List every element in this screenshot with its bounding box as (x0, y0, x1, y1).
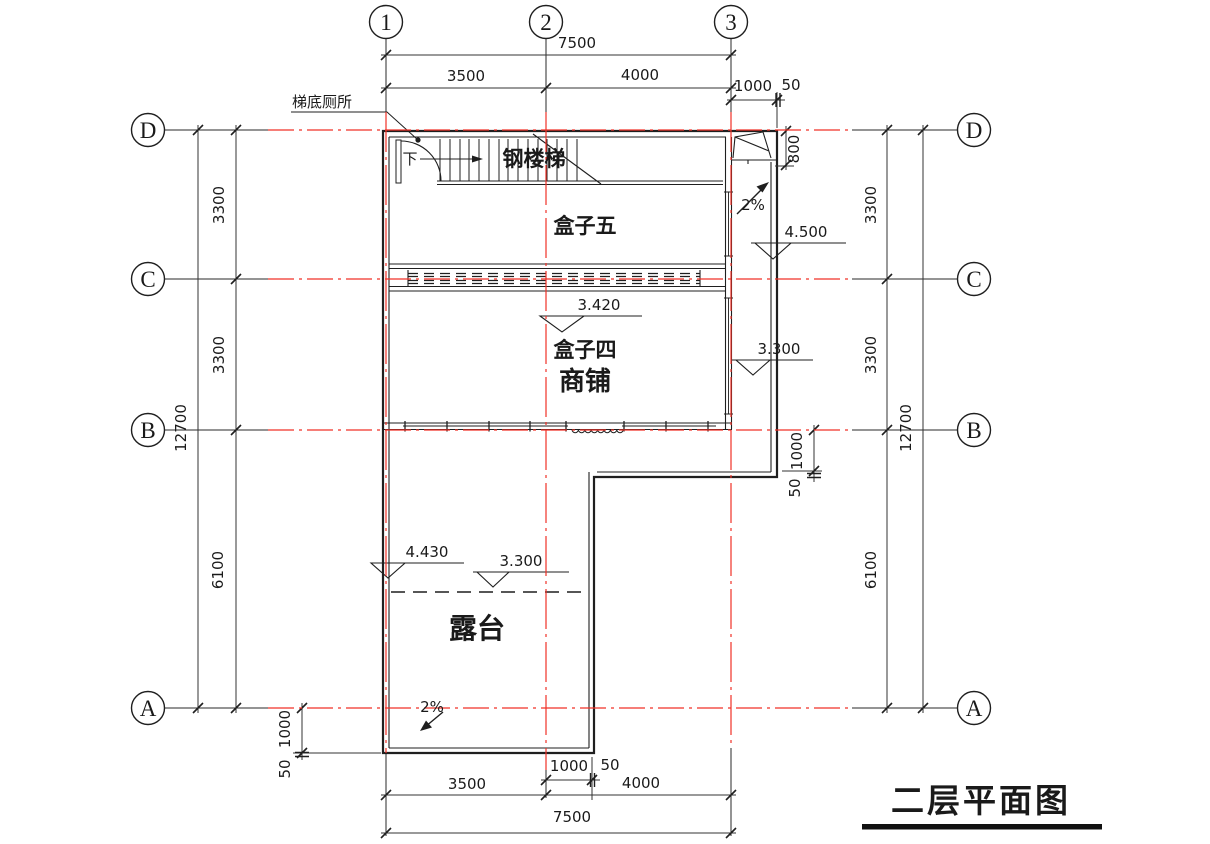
bubble-label-a-left: A (140, 696, 157, 721)
elev-3300-terrace-mark (473, 572, 569, 587)
dim-left-1000: 1000 (276, 710, 294, 748)
elev-4430-mark (371, 563, 464, 578)
bubble-label-1: 1 (380, 10, 392, 35)
dim-left-50: 50 (276, 759, 294, 778)
chute-outline (731, 132, 777, 164)
toilet-leader (291, 112, 421, 143)
elev-3300-terrace-value: 3.300 (500, 552, 543, 570)
bubble-label-d-right: D (966, 118, 983, 143)
room-box5-label: 盒子五 (554, 214, 617, 238)
elev-3300-right-value: 3.300 (758, 340, 801, 358)
slope-arrow-upper-head (757, 182, 770, 193)
floor-plan-canvas: 1 2 3 D C B A D C B A 7500 3500 4000 100… (0, 0, 1210, 844)
bubble-label-3: 3 (725, 10, 737, 35)
elevation-marks (371, 243, 846, 587)
slope-lower-value: 2% (420, 698, 444, 716)
room-box4-label: 盒子四 (554, 338, 617, 362)
room-terrace-label: 露台 (449, 612, 505, 645)
dim-right-3300-cb: 3300 (862, 336, 880, 374)
dim-top-3500: 3500 (447, 67, 485, 85)
elev-4500-value: 4.500 (785, 223, 828, 241)
toilet-note-label: 梯底厕所 (292, 93, 352, 111)
elev-3420-mark (540, 316, 642, 332)
dim-bottom-3500: 3500 (448, 775, 486, 793)
bubble-label-a-right: A (966, 696, 983, 721)
elev-3420-value: 3.420 (578, 296, 621, 314)
toilet-leader-dot (415, 137, 420, 142)
ticks-top (381, 50, 782, 105)
bubble-label-c-right: C (966, 267, 981, 292)
dim-top-50: 50 (781, 76, 800, 94)
axis-bubble-labels: 1 2 3 D C B A D C B A (140, 10, 983, 721)
dim-right-50: 50 (786, 478, 804, 497)
dim-top-1000: 1000 (734, 77, 772, 95)
drawing-title-underline (862, 824, 1102, 830)
drawing-title: 二层平面图 (891, 781, 1071, 820)
room-shop-label: 商铺 (559, 366, 611, 397)
bubble-label-d-left: D (140, 118, 157, 143)
toilet-leader-line (291, 112, 418, 140)
dim-bottom-50: 50 (600, 756, 619, 774)
dim-left-12700: 12700 (172, 404, 190, 452)
stair-down-label: 下 (402, 150, 417, 168)
axis-red-verticals (386, 112, 731, 770)
bubble-label-b-right: B (966, 418, 981, 443)
elev-4430-value: 4.430 (406, 543, 449, 561)
dim-top-7500: 7500 (558, 34, 596, 52)
elev-4500-mark (751, 243, 846, 259)
dimension-lines (198, 55, 923, 833)
dim-800: 800 (785, 135, 803, 164)
dim-right-1000: 1000 (788, 432, 806, 470)
box-divider-walls (389, 264, 726, 291)
dim-left-3300-dc: 3300 (210, 186, 228, 224)
dim-right-6100: 6100 (862, 551, 880, 589)
dim-bottom-1000: 1000 (550, 757, 588, 775)
bubble-label-b-left: B (140, 418, 155, 443)
dim-top-4000: 4000 (621, 66, 659, 84)
bubble-label-2: 2 (540, 10, 552, 35)
dim-top-lines (381, 55, 785, 128)
dim-bottom-7500: 7500 (553, 808, 591, 826)
dim-bottom-4000: 4000 (622, 774, 660, 792)
floor-plan-drawing: 1 2 3 D C B A D C B A 7500 3500 4000 100… (0, 0, 1210, 844)
bubble-label-c-left: C (140, 267, 155, 292)
ticks-bottom (381, 775, 736, 838)
elev-3300-right-mark (732, 360, 813, 375)
dim-right-12700: 12700 (897, 404, 915, 452)
stair-door-leaf (396, 140, 401, 183)
stair-direction-arrowhead (472, 156, 483, 163)
slope-upper-value: 2% (741, 196, 765, 214)
dim-left-3300-cb: 3300 (210, 336, 228, 374)
dim-right-3300-dc: 3300 (862, 186, 880, 224)
stair-landing-edge (437, 181, 723, 185)
steel-stair-label: 钢楼梯 (503, 147, 566, 171)
dim-left-6100: 6100 (209, 551, 227, 589)
room-labels: 梯底厕所 下 钢楼梯 盒子五 盒子四 商铺 露台 (292, 93, 617, 645)
drawing-title-block: 二层平面图 (862, 781, 1102, 830)
